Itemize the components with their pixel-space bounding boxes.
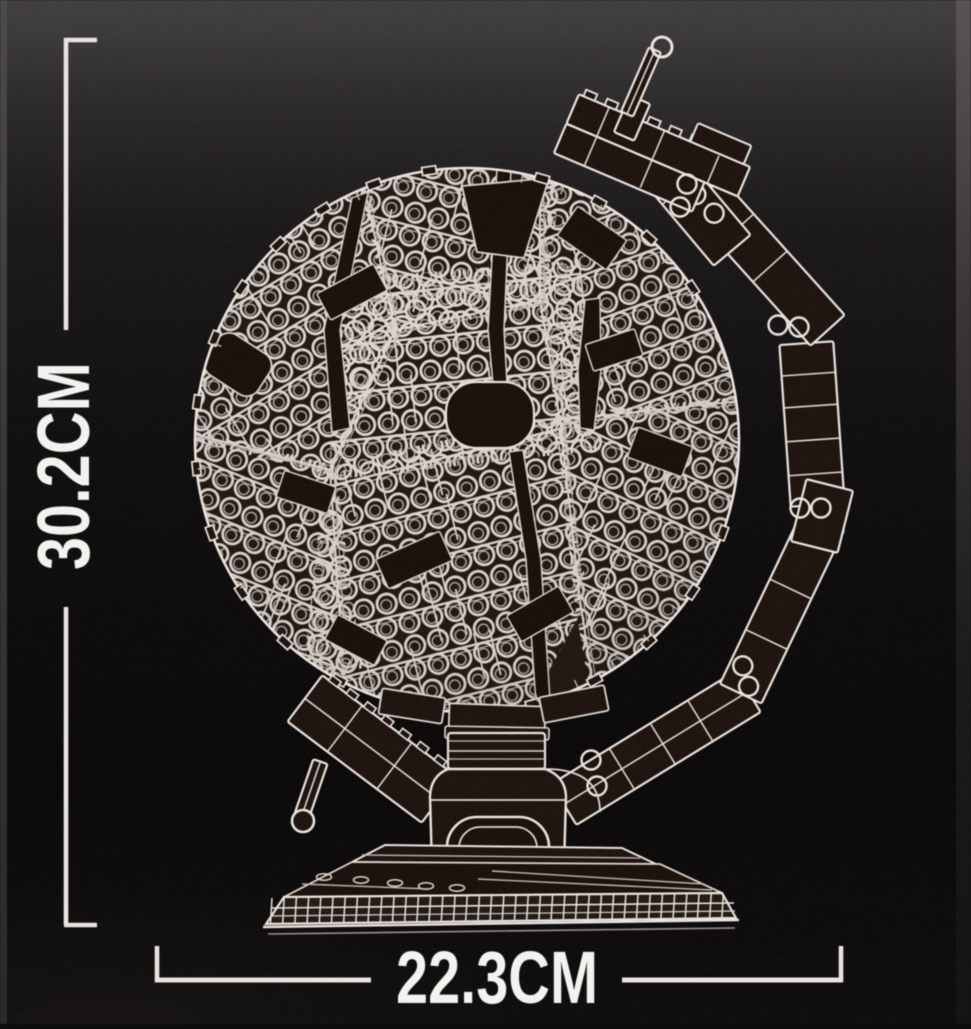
svg-text:22.3CM: 22.3CM [396, 936, 598, 1019]
svg-text:30.2CM: 30.2CM [22, 362, 105, 570]
